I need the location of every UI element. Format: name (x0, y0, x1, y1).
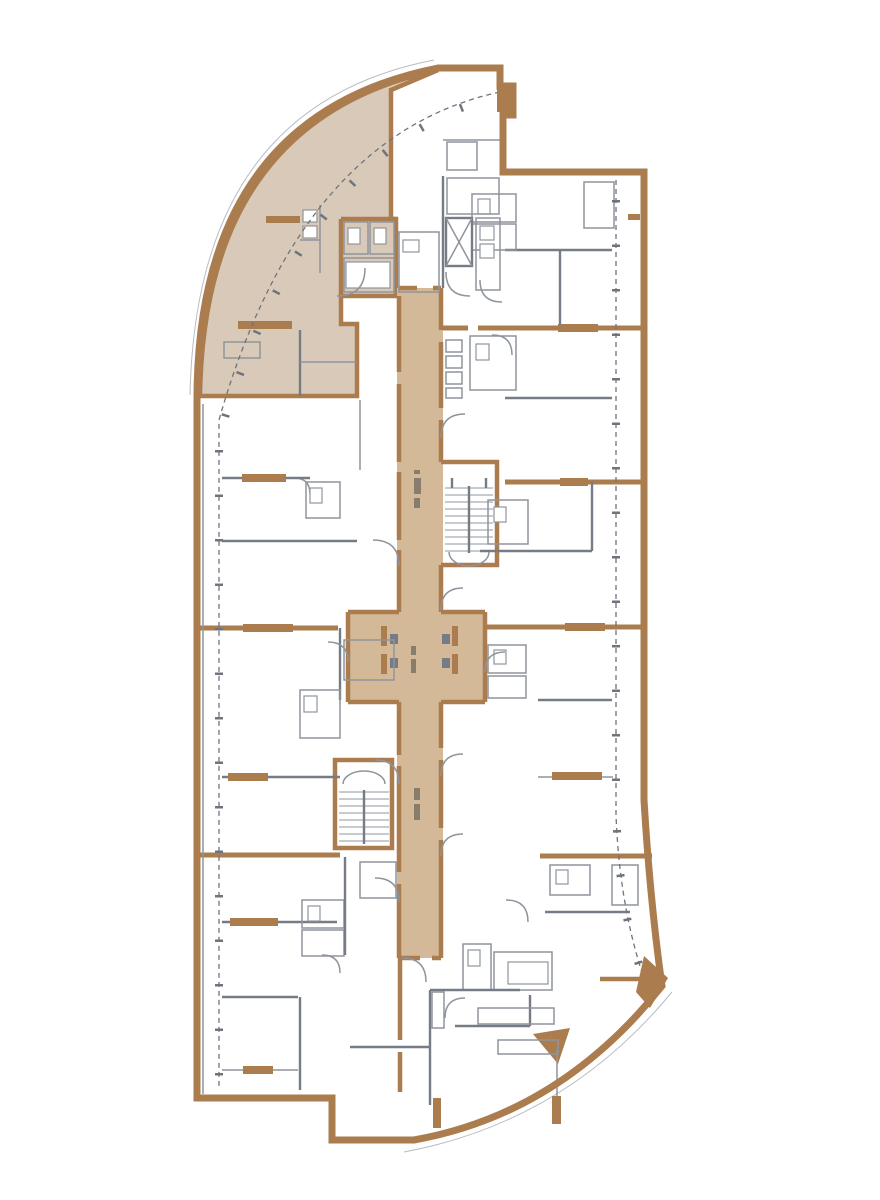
facade-notch (497, 88, 511, 112)
elevator-door (442, 634, 450, 644)
stairwell-lower (335, 760, 392, 848)
floor-plan-canvas (0, 0, 880, 1200)
window-pier (266, 216, 300, 223)
window-pier (238, 321, 292, 329)
elevator-door (442, 658, 450, 668)
partitions-left (222, 400, 396, 1090)
elevator-lobby (348, 612, 485, 702)
floor-plan-page (0, 0, 880, 1200)
elevator-jamb (452, 626, 458, 646)
central-corridor (348, 288, 485, 958)
door-arc (294, 478, 310, 494)
elevator-jamb (381, 626, 387, 646)
elevator-jamb (381, 654, 387, 674)
facade-corner-pier (636, 956, 668, 1008)
facade-pier (533, 1028, 570, 1064)
elevator-jamb (452, 654, 458, 674)
